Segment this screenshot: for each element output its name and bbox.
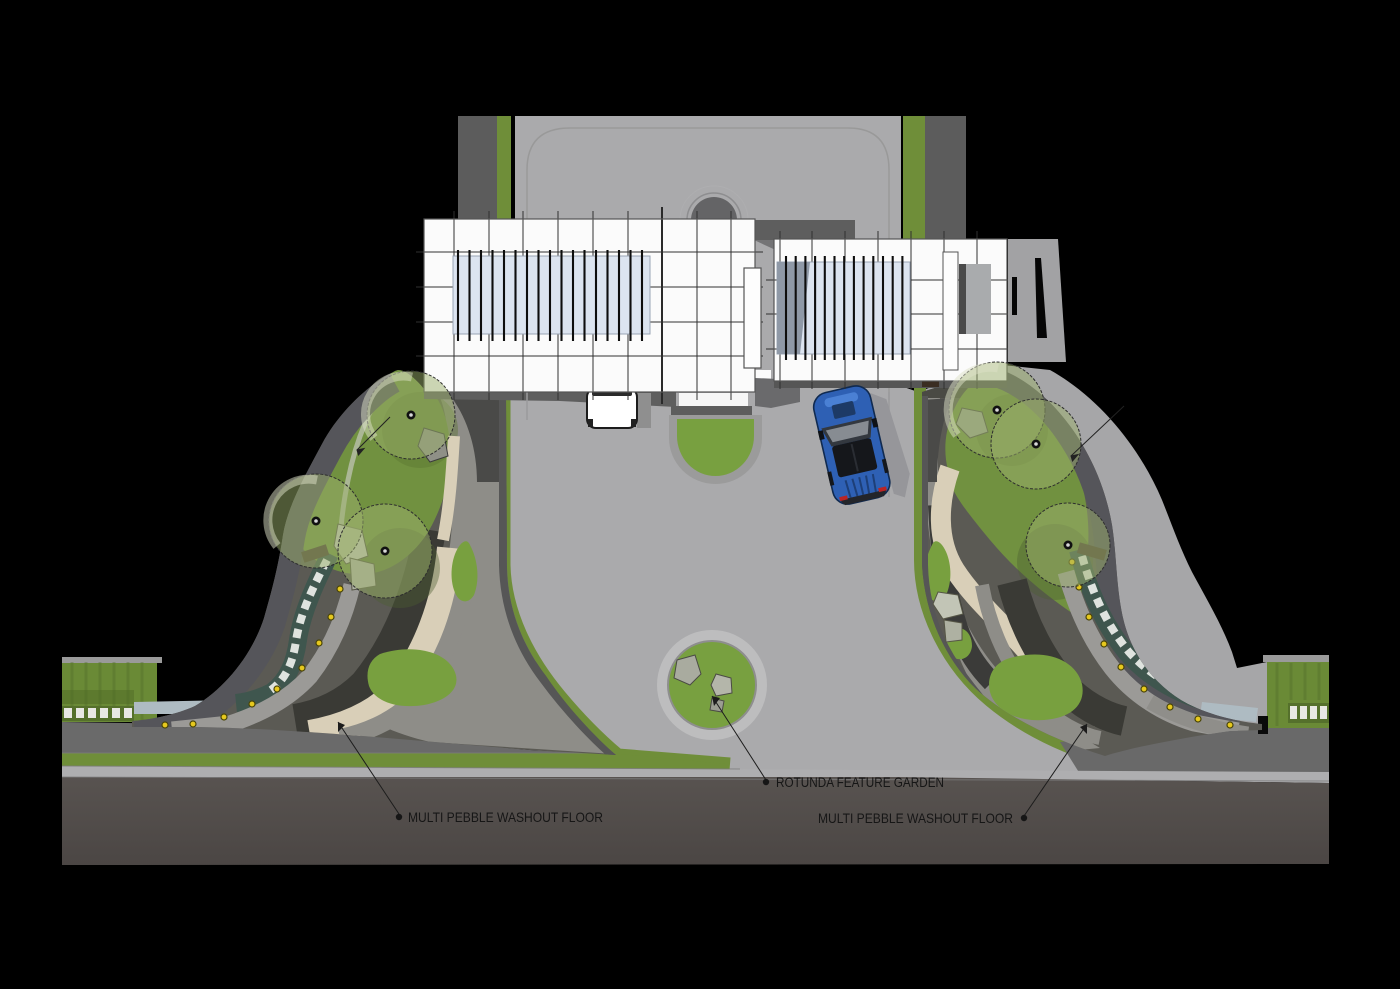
svg-text:MULTI PEBBLE WASHOUT FLOOR: MULTI PEBBLE WASHOUT FLOOR xyxy=(408,810,603,825)
svg-text:MULTI PEBBLE WASHOUT FLOOR: MULTI PEBBLE WASHOUT FLOOR xyxy=(818,811,1013,826)
svg-text:ROTUNDA FEATURE GARDEN: ROTUNDA FEATURE GARDEN xyxy=(776,775,944,790)
